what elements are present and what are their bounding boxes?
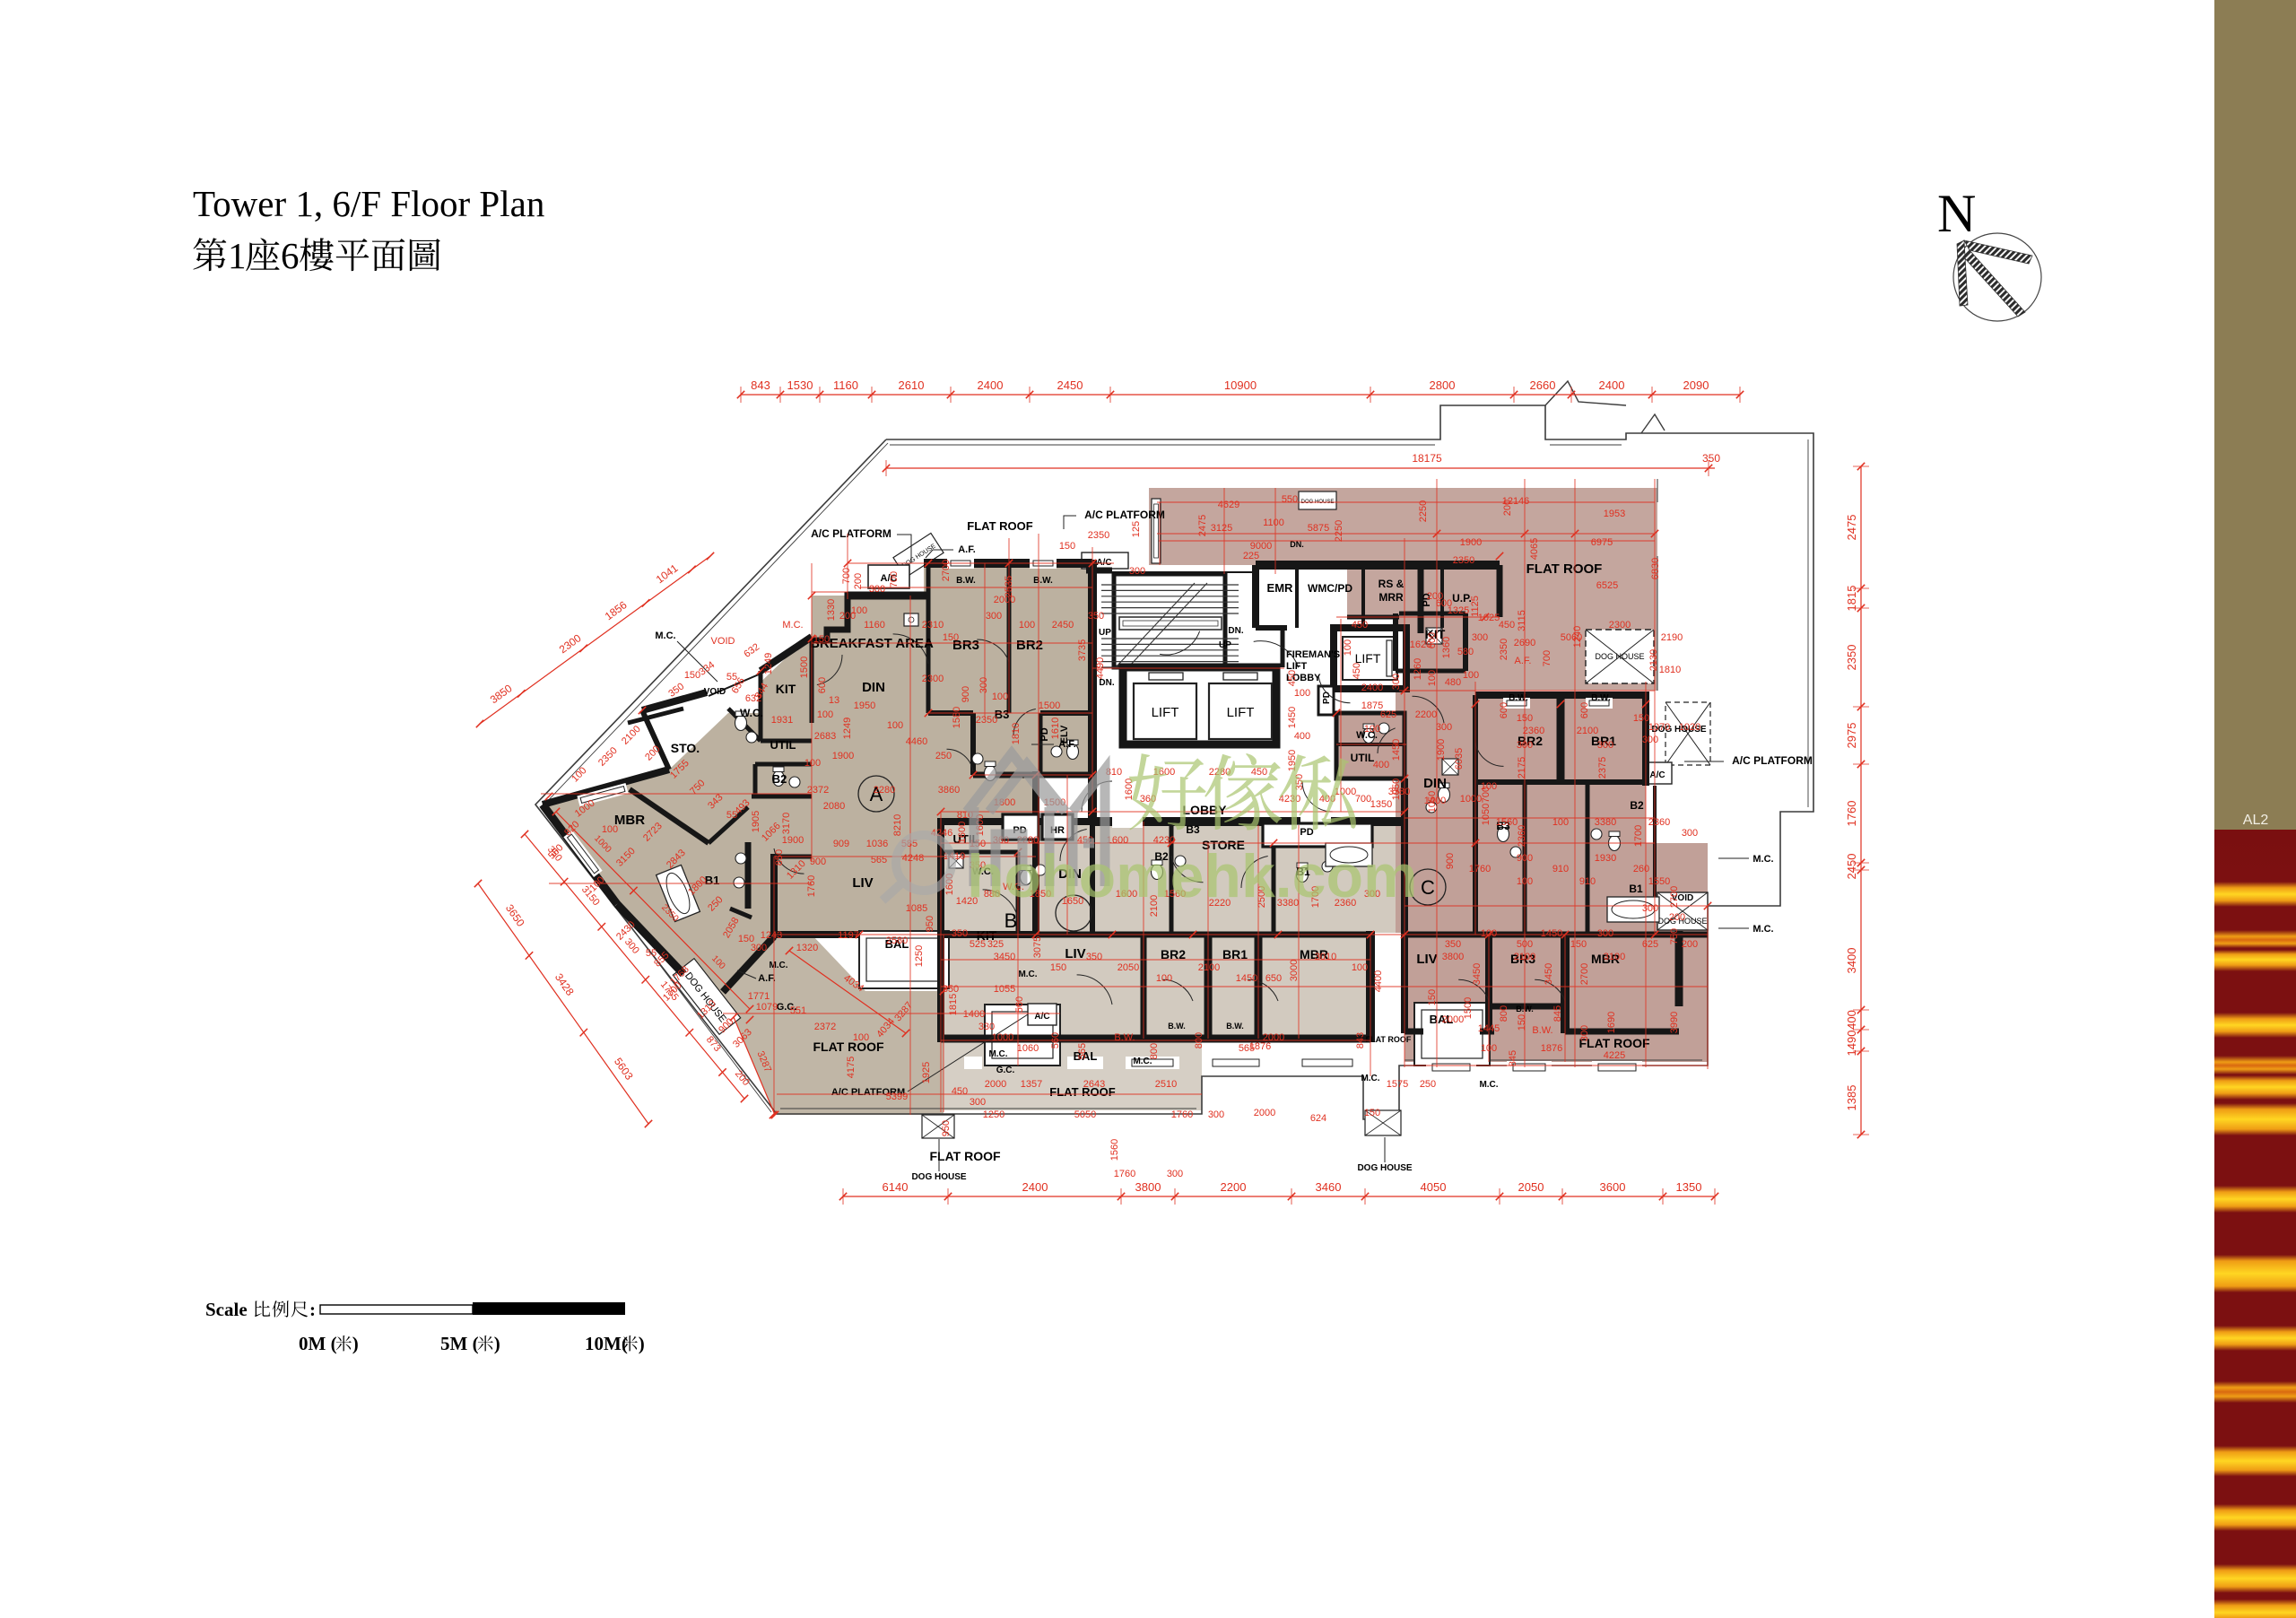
svg-text:1575: 1575 bbox=[1387, 1079, 1408, 1090]
svg-text:325: 325 bbox=[987, 939, 1004, 950]
svg-text:300: 300 bbox=[978, 677, 989, 693]
svg-text:G.C.: G.C. bbox=[996, 1066, 1015, 1075]
svg-text:B.W.: B.W. bbox=[1509, 693, 1528, 703]
svg-text:1760: 1760 bbox=[1114, 1169, 1135, 1179]
svg-text:M.C.: M.C. bbox=[1752, 924, 1773, 935]
svg-text:350: 350 bbox=[1445, 939, 1461, 950]
svg-text:551: 551 bbox=[790, 1005, 806, 1016]
svg-text:): ) bbox=[494, 1333, 500, 1354]
svg-text:1050: 1050 bbox=[1481, 804, 1492, 825]
svg-text:100: 100 bbox=[853, 1032, 869, 1043]
svg-text:300: 300 bbox=[751, 943, 767, 953]
svg-text:LIV: LIV bbox=[1065, 946, 1085, 961]
svg-text:845: 845 bbox=[1552, 1005, 1563, 1022]
svg-text:1160: 1160 bbox=[833, 378, 858, 392]
svg-text:6975: 6975 bbox=[1591, 537, 1613, 548]
svg-text:2300: 2300 bbox=[922, 674, 944, 684]
svg-text:3075: 3075 bbox=[1032, 936, 1043, 958]
svg-text:1931: 1931 bbox=[771, 715, 793, 726]
svg-text:1079: 1079 bbox=[756, 1002, 778, 1013]
svg-text:2300: 2300 bbox=[1609, 620, 1631, 631]
svg-text:2683: 2683 bbox=[814, 731, 836, 742]
svg-text:300: 300 bbox=[1642, 735, 1658, 745]
svg-text:450: 450 bbox=[1352, 620, 1368, 631]
svg-text:3400: 3400 bbox=[1845, 948, 1858, 974]
svg-text:480: 480 bbox=[1445, 677, 1461, 688]
svg-text:1876: 1876 bbox=[1541, 1043, 1562, 1054]
svg-text:100: 100 bbox=[1481, 928, 1497, 939]
svg-text:2100: 2100 bbox=[1198, 962, 1220, 973]
svg-text:2800: 2800 bbox=[1430, 378, 1456, 392]
svg-text:1771: 1771 bbox=[748, 991, 770, 1002]
svg-text:5M (: 5M ( bbox=[440, 1333, 479, 1354]
svg-text:625: 625 bbox=[1642, 939, 1658, 950]
svg-text:800: 800 bbox=[1499, 1005, 1509, 1022]
svg-text:843: 843 bbox=[1355, 1032, 1366, 1048]
svg-text:2350: 2350 bbox=[976, 715, 997, 726]
svg-text:250: 250 bbox=[1420, 1079, 1436, 1090]
svg-text:100: 100 bbox=[992, 692, 1008, 702]
svg-text:910: 910 bbox=[1579, 876, 1596, 887]
svg-text:150: 150 bbox=[1427, 989, 1438, 1005]
svg-text:U.P.: U.P. bbox=[1452, 592, 1472, 605]
svg-text:100: 100 bbox=[1364, 724, 1380, 735]
svg-text:1036: 1036 bbox=[866, 839, 888, 849]
svg-text:1450: 1450 bbox=[1391, 739, 1402, 761]
svg-text:M.C.: M.C. bbox=[655, 631, 675, 641]
svg-text:2090: 2090 bbox=[1683, 378, 1709, 392]
svg-text:2450: 2450 bbox=[1845, 854, 1858, 880]
svg-text:1760: 1760 bbox=[1171, 1109, 1193, 1120]
svg-text:B.W.: B.W. bbox=[1168, 1022, 1186, 1031]
svg-text:18175: 18175 bbox=[1412, 452, 1442, 465]
svg-text:450: 450 bbox=[1352, 663, 1362, 679]
svg-text:2400: 2400 bbox=[1361, 683, 1383, 693]
svg-text:2360: 2360 bbox=[1517, 825, 1527, 847]
svg-text:300: 300 bbox=[1682, 828, 1698, 839]
svg-text:2000: 2000 bbox=[1442, 1014, 1464, 1025]
svg-text:1450: 1450 bbox=[1287, 707, 1298, 728]
svg-text:600: 600 bbox=[817, 677, 828, 693]
svg-text:DOG HOUSE: DOG HOUSE bbox=[1357, 1163, 1412, 1173]
svg-text:350: 350 bbox=[952, 928, 968, 939]
svg-text:2350: 2350 bbox=[1088, 530, 1109, 541]
svg-text:3380: 3380 bbox=[1388, 787, 1410, 797]
svg-text:1815: 1815 bbox=[1845, 586, 1858, 612]
svg-text:4460: 4460 bbox=[906, 736, 927, 747]
svg-text:2350: 2350 bbox=[1453, 555, 1474, 566]
svg-text:6525: 6525 bbox=[1596, 580, 1618, 591]
svg-text:B1: B1 bbox=[1629, 883, 1643, 895]
svg-text:1610: 1610 bbox=[1050, 718, 1061, 739]
svg-text:A/C PLATFORM: A/C PLATFORM bbox=[811, 527, 891, 540]
svg-text:UP: UP bbox=[1099, 628, 1111, 638]
svg-text:LIFT: LIFT bbox=[1227, 705, 1255, 720]
svg-text:565: 565 bbox=[1077, 1043, 1088, 1059]
svg-text:260: 260 bbox=[1633, 864, 1649, 874]
svg-text:150: 150 bbox=[1570, 939, 1587, 950]
svg-text:700: 700 bbox=[1542, 650, 1552, 666]
svg-text:350: 350 bbox=[943, 984, 959, 995]
svg-text:A/C: A/C bbox=[1649, 770, 1665, 780]
svg-text:W.C.: W.C. bbox=[740, 707, 763, 719]
svg-text:4490: 4490 bbox=[1095, 657, 1106, 679]
svg-text:350: 350 bbox=[1088, 611, 1104, 622]
svg-text:350: 350 bbox=[1086, 952, 1102, 962]
svg-text:13: 13 bbox=[829, 695, 839, 706]
svg-text:1249: 1249 bbox=[842, 718, 853, 739]
svg-text:1900: 1900 bbox=[1436, 739, 1447, 761]
svg-text:600: 600 bbox=[1579, 702, 1590, 718]
svg-text:A.F.: A.F. bbox=[958, 544, 976, 555]
svg-text:M.C.: M.C. bbox=[1479, 1080, 1498, 1090]
svg-text:6035: 6035 bbox=[1454, 748, 1465, 770]
svg-text:1490: 1490 bbox=[1845, 1031, 1858, 1057]
svg-text:2280: 2280 bbox=[874, 785, 895, 796]
svg-text:100: 100 bbox=[1019, 620, 1035, 631]
svg-text:WMC/PD: WMC/PD bbox=[1308, 582, 1352, 595]
svg-text:560: 560 bbox=[1050, 1032, 1061, 1048]
svg-text:125: 125 bbox=[1131, 521, 1142, 537]
svg-text:350: 350 bbox=[1702, 452, 1720, 465]
svg-text:1025: 1025 bbox=[1478, 613, 1500, 623]
svg-text:3010: 3010 bbox=[1315, 952, 1336, 962]
svg-text:B: B bbox=[1004, 909, 1018, 932]
svg-text:A.F.: A.F. bbox=[1058, 739, 1076, 750]
svg-text:2660: 2660 bbox=[1530, 378, 1556, 392]
svg-text:A.F.: A.F. bbox=[758, 973, 776, 984]
svg-text:RS &: RS & bbox=[1378, 578, 1405, 590]
svg-text:600: 600 bbox=[1427, 632, 1438, 648]
svg-text:B.W.: B.W. bbox=[1532, 1025, 1552, 1036]
svg-text:3100: 3100 bbox=[1604, 952, 1625, 962]
svg-text:1360: 1360 bbox=[1441, 637, 1452, 658]
svg-text:450: 450 bbox=[1499, 620, 1515, 631]
svg-text:150: 150 bbox=[813, 634, 830, 645]
svg-text:N: N bbox=[1937, 184, 1976, 243]
svg-text:910: 910 bbox=[1552, 864, 1569, 874]
svg-text:6830: 6830 bbox=[1650, 558, 1661, 579]
svg-text:950: 950 bbox=[925, 916, 935, 932]
svg-text:2100: 2100 bbox=[1514, 952, 1535, 962]
svg-text:DOG HOUSE: DOG HOUSE bbox=[1595, 652, 1644, 661]
svg-text:A/C PLATFORM: A/C PLATFORM bbox=[1084, 509, 1165, 521]
svg-text:3600: 3600 bbox=[1600, 1180, 1626, 1194]
svg-text:BR2: BR2 bbox=[1016, 638, 1043, 653]
svg-text:4225: 4225 bbox=[1604, 1050, 1625, 1061]
svg-text:2360: 2360 bbox=[1523, 726, 1544, 736]
svg-text:M.C.: M.C. bbox=[988, 1049, 1007, 1059]
svg-text:1580: 1580 bbox=[952, 707, 962, 728]
svg-text:1250: 1250 bbox=[914, 945, 925, 967]
svg-text:2350: 2350 bbox=[1499, 639, 1509, 660]
svg-text:1690: 1690 bbox=[1606, 1012, 1617, 1033]
svg-text:2372: 2372 bbox=[814, 1022, 836, 1032]
svg-text:UP: UP bbox=[1219, 640, 1231, 650]
svg-text:200: 200 bbox=[1669, 912, 1685, 923]
svg-text:2250: 2250 bbox=[1334, 520, 1344, 542]
svg-text:1400: 1400 bbox=[963, 1009, 985, 1020]
svg-text:1760: 1760 bbox=[806, 875, 817, 897]
svg-text:3450: 3450 bbox=[1544, 963, 1554, 985]
svg-text:1243: 1243 bbox=[761, 930, 782, 941]
svg-text:1197: 1197 bbox=[838, 930, 859, 941]
svg-text:100: 100 bbox=[1552, 817, 1569, 828]
svg-text:3860: 3860 bbox=[938, 785, 960, 796]
svg-text:3115: 3115 bbox=[1517, 610, 1527, 631]
svg-text:2250: 2250 bbox=[1418, 500, 1429, 522]
svg-text:1560: 1560 bbox=[1109, 1139, 1120, 1161]
svg-text:800: 800 bbox=[1149, 1043, 1160, 1059]
svg-text:300: 300 bbox=[1642, 903, 1658, 914]
svg-text:3170: 3170 bbox=[781, 813, 792, 834]
svg-text:900: 900 bbox=[961, 686, 971, 702]
svg-text:1320: 1320 bbox=[796, 943, 818, 953]
svg-text:300: 300 bbox=[1208, 1109, 1224, 1120]
svg-text:UTIL: UTIL bbox=[1351, 752, 1375, 764]
svg-text:800: 800 bbox=[1194, 1032, 1205, 1048]
svg-text:2130: 2130 bbox=[1648, 649, 1659, 671]
svg-text:300: 300 bbox=[869, 584, 885, 595]
svg-text:300: 300 bbox=[1472, 632, 1488, 643]
svg-text:2372: 2372 bbox=[807, 785, 829, 796]
svg-text:1760: 1760 bbox=[1845, 801, 1858, 827]
svg-text:450: 450 bbox=[952, 1086, 968, 1097]
svg-text:580: 580 bbox=[1457, 647, 1474, 657]
svg-text:950: 950 bbox=[941, 1120, 952, 1136]
svg-text:LIFT: LIFT bbox=[1152, 705, 1179, 720]
svg-text:2610: 2610 bbox=[899, 378, 925, 392]
svg-text:1085: 1085 bbox=[906, 903, 927, 914]
svg-text:1500: 1500 bbox=[1039, 700, 1060, 711]
svg-text:DIN: DIN bbox=[1423, 776, 1447, 791]
svg-text:1905: 1905 bbox=[751, 811, 761, 832]
svg-text:1815: 1815 bbox=[948, 994, 959, 1015]
svg-text:300: 300 bbox=[1129, 566, 1145, 577]
svg-text:0M (: 0M ( bbox=[299, 1333, 337, 1354]
svg-text:100: 100 bbox=[1427, 670, 1438, 686]
svg-text:1950: 1950 bbox=[854, 700, 875, 711]
svg-text:100: 100 bbox=[817, 709, 833, 720]
svg-text::: : bbox=[309, 1299, 316, 1320]
svg-text:560: 560 bbox=[1014, 996, 1025, 1013]
svg-text:700: 700 bbox=[841, 568, 852, 584]
svg-text:DIN: DIN bbox=[862, 680, 885, 695]
svg-text:C: C bbox=[1421, 876, 1435, 899]
svg-text:STO.: STO. bbox=[671, 741, 700, 755]
svg-text:LIV: LIV bbox=[1416, 952, 1437, 967]
svg-text:2690: 2690 bbox=[1514, 638, 1535, 648]
svg-text:624: 624 bbox=[1310, 1113, 1326, 1124]
svg-text:845: 845 bbox=[1508, 1050, 1518, 1066]
svg-text:1925: 1925 bbox=[921, 1062, 932, 1083]
svg-text:FLAT ROOF: FLAT ROOF bbox=[929, 1149, 1001, 1163]
svg-text:2050: 2050 bbox=[1518, 1180, 1544, 1194]
svg-text:1930: 1930 bbox=[1595, 853, 1616, 864]
svg-text:750: 750 bbox=[1669, 928, 1680, 944]
svg-text:1700: 1700 bbox=[1633, 825, 1644, 847]
svg-text:100: 100 bbox=[804, 758, 821, 769]
svg-text:300: 300 bbox=[1597, 740, 1613, 751]
svg-text:1357: 1357 bbox=[1021, 1079, 1042, 1090]
svg-text:2080: 2080 bbox=[823, 801, 845, 812]
svg-text:150: 150 bbox=[1050, 962, 1066, 973]
svg-text:M.C.: M.C. bbox=[782, 620, 803, 631]
svg-text:3380: 3380 bbox=[1595, 817, 1616, 828]
svg-text:DN.: DN. bbox=[1290, 540, 1304, 549]
svg-text:3735: 3735 bbox=[1077, 639, 1088, 661]
svg-text:MRR: MRR bbox=[1378, 591, 1404, 604]
svg-text:2475: 2475 bbox=[1845, 515, 1858, 541]
svg-text:1876: 1876 bbox=[1249, 1041, 1271, 1052]
svg-text:2400: 2400 bbox=[1022, 1180, 1048, 1194]
svg-text:250: 250 bbox=[935, 751, 952, 761]
svg-text:2475: 2475 bbox=[1197, 515, 1208, 536]
svg-text:700: 700 bbox=[1355, 794, 1371, 805]
svg-text:4050: 4050 bbox=[1421, 1180, 1447, 1194]
svg-text:565: 565 bbox=[871, 855, 887, 866]
svg-text:2310: 2310 bbox=[922, 620, 944, 631]
svg-text:1020: 1020 bbox=[1679, 722, 1700, 733]
svg-text:4065: 4065 bbox=[1529, 538, 1540, 560]
svg-text:Tower 1, 6/F Floor Plan: Tower 1, 6/F Floor Plan bbox=[193, 183, 544, 224]
svg-text:650: 650 bbox=[1265, 973, 1282, 984]
svg-text:225: 225 bbox=[1243, 551, 1259, 561]
svg-text:700: 700 bbox=[1481, 787, 1492, 803]
svg-text:1900: 1900 bbox=[1460, 537, 1482, 548]
svg-text:): ) bbox=[352, 1333, 359, 1354]
svg-text:1900: 1900 bbox=[782, 835, 804, 846]
svg-text:2975: 2975 bbox=[1845, 723, 1858, 749]
svg-text:1953: 1953 bbox=[1604, 509, 1625, 519]
svg-text:KIT: KIT bbox=[776, 682, 796, 696]
svg-text:1500: 1500 bbox=[799, 657, 810, 678]
svg-text:2700: 2700 bbox=[1579, 963, 1590, 985]
svg-text:1760: 1760 bbox=[1469, 864, 1491, 874]
svg-text:150: 150 bbox=[1517, 1014, 1527, 1031]
svg-text:2050: 2050 bbox=[1118, 962, 1139, 973]
svg-text:1350: 1350 bbox=[1676, 1180, 1702, 1194]
svg-text:850: 850 bbox=[774, 849, 785, 866]
svg-text:AL2: AL2 bbox=[2243, 813, 2269, 828]
svg-text:1240: 1240 bbox=[1572, 626, 1583, 648]
svg-text:6140: 6140 bbox=[883, 1180, 909, 1194]
svg-text:5050: 5050 bbox=[1074, 1109, 1096, 1120]
svg-text:1530: 1530 bbox=[787, 378, 813, 392]
svg-text:1260: 1260 bbox=[1413, 658, 1423, 680]
svg-text:Scale: Scale bbox=[205, 1299, 248, 1320]
svg-text:2360: 2360 bbox=[1648, 817, 1670, 828]
svg-text:1000: 1000 bbox=[992, 1032, 1013, 1043]
svg-text:2450: 2450 bbox=[1057, 378, 1083, 392]
svg-text:300: 300 bbox=[1597, 928, 1613, 939]
svg-text:2580: 2580 bbox=[886, 935, 908, 946]
svg-text:1055: 1055 bbox=[994, 984, 1015, 995]
svg-text:B.W.: B.W. bbox=[1226, 1022, 1244, 1031]
svg-text:1385: 1385 bbox=[1845, 1085, 1858, 1111]
svg-text:100: 100 bbox=[1352, 962, 1368, 973]
svg-text:1000: 1000 bbox=[1460, 794, 1482, 805]
svg-text:VOID: VOID bbox=[704, 687, 726, 697]
svg-text:1450: 1450 bbox=[1541, 928, 1562, 939]
svg-text:400: 400 bbox=[1294, 731, 1310, 742]
svg-text:300: 300 bbox=[1436, 722, 1452, 733]
svg-text:700: 700 bbox=[889, 571, 900, 587]
svg-text:3450: 3450 bbox=[994, 952, 1015, 962]
svg-text:1810: 1810 bbox=[1011, 723, 1022, 744]
svg-text:1: 1 bbox=[228, 235, 247, 276]
svg-text:3450: 3450 bbox=[1472, 963, 1483, 985]
svg-text:B.W.: B.W. bbox=[1033, 576, 1053, 586]
svg-text:1160: 1160 bbox=[864, 620, 885, 631]
svg-text:625: 625 bbox=[1380, 709, 1396, 720]
svg-text:100: 100 bbox=[851, 605, 867, 616]
svg-text:1050: 1050 bbox=[1427, 791, 1438, 813]
svg-text:100: 100 bbox=[1343, 639, 1353, 656]
svg-text:B3: B3 bbox=[1186, 823, 1200, 836]
svg-text:2375: 2375 bbox=[1597, 757, 1608, 779]
svg-text:1900: 1900 bbox=[832, 751, 854, 761]
svg-text:1060: 1060 bbox=[1017, 1043, 1039, 1054]
svg-text:3000: 3000 bbox=[1289, 960, 1300, 981]
svg-text:A.F.: A.F. bbox=[1515, 656, 1532, 666]
svg-text:450: 450 bbox=[1287, 670, 1298, 686]
svg-text:200: 200 bbox=[1502, 500, 1513, 516]
svg-text:FLAT ROOF: FLAT ROOF bbox=[813, 1040, 884, 1054]
svg-text:3800: 3800 bbox=[1442, 952, 1464, 962]
svg-text:150: 150 bbox=[684, 670, 700, 681]
svg-text:1560: 1560 bbox=[1496, 817, 1518, 828]
svg-text:2100: 2100 bbox=[1577, 726, 1598, 736]
svg-text:FLAT ROOF: FLAT ROOF bbox=[1526, 561, 1603, 577]
svg-text:1550: 1550 bbox=[1648, 876, 1670, 887]
svg-text:M.C.: M.C. bbox=[1018, 970, 1037, 979]
svg-text:UTIL: UTIL bbox=[770, 738, 796, 752]
svg-text:450: 450 bbox=[1251, 767, 1267, 778]
svg-text:PD: PD bbox=[1300, 827, 1313, 838]
svg-text:400: 400 bbox=[1845, 1010, 1858, 1030]
svg-text:1330: 1330 bbox=[826, 599, 837, 621]
svg-text:hohomehk.com: hohomehk.com bbox=[967, 842, 1418, 910]
svg-text:2000: 2000 bbox=[1254, 1108, 1275, 1118]
svg-text:): ) bbox=[639, 1333, 645, 1354]
svg-text:2400: 2400 bbox=[1599, 378, 1625, 392]
svg-text:150: 150 bbox=[1364, 1108, 1380, 1118]
svg-text:900: 900 bbox=[810, 857, 826, 867]
svg-text:500: 500 bbox=[1517, 939, 1533, 950]
svg-text:100: 100 bbox=[887, 720, 903, 731]
svg-text:3990: 3990 bbox=[1669, 1012, 1680, 1033]
svg-text:200: 200 bbox=[853, 573, 864, 589]
svg-text:400: 400 bbox=[1373, 760, 1389, 770]
svg-text:900: 900 bbox=[1517, 853, 1533, 864]
svg-text:150: 150 bbox=[943, 632, 959, 643]
svg-text:4248: 4248 bbox=[902, 853, 924, 864]
svg-text:550: 550 bbox=[1282, 494, 1298, 505]
svg-text:EMR: EMR bbox=[1267, 581, 1294, 595]
svg-text:300: 300 bbox=[970, 1097, 986, 1108]
svg-text:909: 909 bbox=[833, 839, 849, 849]
svg-text:600: 600 bbox=[1499, 702, 1509, 718]
svg-text:B.W.: B.W. bbox=[956, 576, 976, 586]
svg-text:4175: 4175 bbox=[846, 1057, 857, 1078]
svg-text:B.W.: B.W. bbox=[1114, 1032, 1135, 1043]
svg-text:4400: 4400 bbox=[1373, 970, 1384, 992]
svg-text:2000: 2000 bbox=[985, 1079, 1006, 1090]
svg-text:100: 100 bbox=[1463, 670, 1479, 681]
svg-text:150: 150 bbox=[1517, 713, 1533, 724]
svg-text:55: 55 bbox=[646, 948, 657, 959]
